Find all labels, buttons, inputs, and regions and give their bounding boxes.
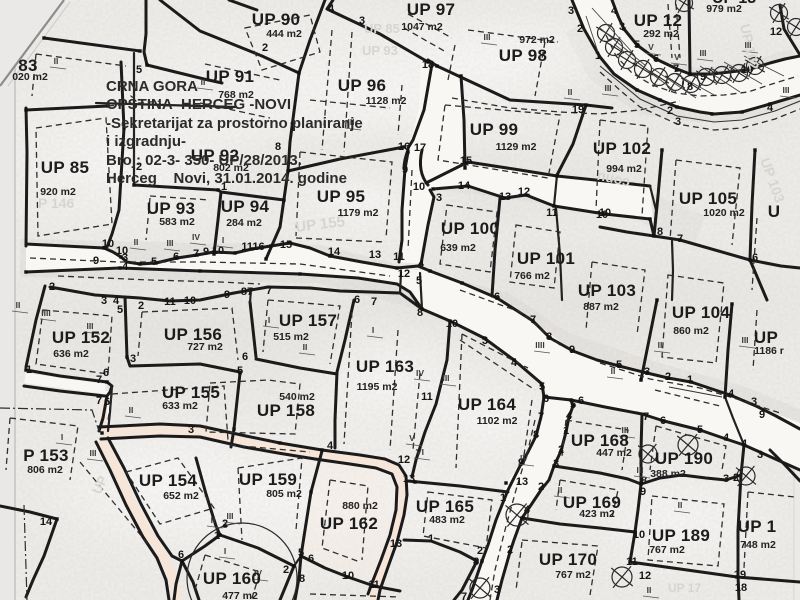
svg-text:13: 13	[369, 249, 381, 261]
svg-text:7: 7	[677, 233, 683, 245]
svg-text:11: 11	[546, 207, 558, 219]
svg-text:UP 91: UP 91	[206, 67, 254, 86]
svg-text:4: 4	[566, 410, 573, 422]
svg-text:3: 3	[130, 353, 136, 365]
svg-text:IIII: IIII	[535, 340, 544, 350]
svg-text:994 m2: 994 m2	[606, 163, 642, 175]
svg-text:10: 10	[102, 238, 114, 250]
svg-text:6: 6	[104, 396, 110, 408]
svg-text:284 m2: 284 m2	[226, 217, 262, 229]
svg-text:III: III	[442, 373, 449, 383]
svg-text:16: 16	[398, 141, 410, 153]
svg-text:9: 9	[203, 246, 209, 258]
svg-text:4: 4	[728, 388, 735, 400]
svg-text:14: 14	[458, 180, 471, 192]
svg-text:19: 19	[572, 104, 584, 116]
svg-text:4: 4	[611, 5, 618, 17]
svg-text:UP 102: UP 102	[593, 139, 651, 158]
svg-text:19: 19	[734, 569, 746, 581]
svg-text:13: 13	[499, 191, 511, 203]
svg-text:UP 95: UP 95	[317, 187, 365, 206]
svg-text:3: 3	[751, 396, 757, 408]
svg-text:5: 5	[237, 365, 243, 377]
svg-text:6: 6	[103, 367, 109, 379]
svg-text:UP 94: UP 94	[221, 197, 270, 216]
svg-text:2: 2	[283, 564, 289, 576]
svg-text:UP 90: UP 90	[252, 10, 300, 29]
svg-text:10: 10	[446, 318, 458, 330]
svg-text:388 m2: 388 m2	[650, 468, 686, 480]
svg-text:1128 m2: 1128 m2	[366, 95, 407, 107]
svg-text:3: 3	[568, 5, 574, 17]
svg-text:III: III	[699, 48, 706, 58]
svg-text:12: 12	[518, 186, 530, 198]
svg-text:5: 5	[136, 64, 142, 76]
svg-text:2: 2	[538, 481, 544, 493]
svg-text:805 m2: 805 m2	[266, 488, 302, 500]
svg-text:8: 8	[533, 429, 539, 441]
svg-text:7: 7	[643, 411, 649, 423]
svg-text:2: 2	[577, 23, 583, 35]
svg-text:9: 9	[700, 71, 706, 83]
svg-text:6: 6	[242, 351, 248, 363]
svg-text:979 m2: 979 m2	[706, 3, 742, 15]
svg-text:3: 3	[553, 458, 559, 470]
svg-text:II: II	[611, 366, 616, 376]
svg-text:11: 11	[421, 391, 433, 403]
svg-text:5: 5	[539, 381, 545, 393]
svg-text:I: I	[268, 315, 270, 325]
svg-text:i izgradnju-: i izgradnju-	[106, 133, 186, 150]
svg-text:1: 1	[214, 530, 220, 542]
svg-text:IV: IV	[520, 453, 528, 463]
svg-text:633 m2: 633 m2	[162, 400, 198, 412]
svg-text:9: 9	[93, 255, 99, 267]
svg-text:6: 6	[752, 252, 758, 264]
svg-text:UP 157: UP 157	[279, 311, 337, 330]
svg-text:9: 9	[402, 164, 408, 176]
svg-text:I: I	[61, 432, 63, 442]
svg-text:13: 13	[390, 538, 402, 550]
svg-text:636 m2: 636 m2	[53, 348, 89, 360]
svg-text:4: 4	[723, 432, 730, 444]
svg-text:8: 8	[546, 331, 552, 343]
svg-text:5: 5	[616, 359, 622, 371]
svg-text:12: 12	[770, 26, 782, 38]
svg-text:14: 14	[328, 246, 341, 258]
svg-text:3: 3	[188, 424, 194, 436]
svg-text:1020 m2: 1020 m2	[703, 207, 745, 219]
svg-text:1186 r: 1186 r	[754, 345, 784, 357]
svg-text:1: 1	[687, 374, 693, 386]
svg-text:UP 190: UP 190	[655, 449, 713, 468]
svg-text:UP 158: UP 158	[257, 401, 315, 420]
svg-text:V: V	[648, 42, 654, 52]
svg-text:4: 4	[418, 258, 425, 270]
svg-text:87: 87	[241, 286, 253, 298]
svg-text:444 m2: 444 m2	[266, 28, 302, 40]
svg-text:11: 11	[164, 296, 176, 308]
svg-text:7: 7	[538, 411, 544, 423]
svg-text:IV: IV	[192, 232, 200, 242]
svg-text:5: 5	[298, 547, 304, 559]
svg-text:3: 3	[644, 366, 650, 378]
svg-text:4: 4	[524, 504, 531, 516]
svg-text:5: 5	[117, 304, 123, 316]
svg-text:III: III	[483, 32, 490, 42]
svg-text:639 m2: 639 m2	[440, 242, 476, 254]
svg-text:767 m2: 767 m2	[555, 569, 591, 581]
svg-text:6: 6	[354, 294, 360, 306]
svg-text:V: V	[674, 52, 680, 62]
svg-text:12: 12	[639, 570, 651, 582]
svg-text:III: III	[636, 465, 643, 475]
svg-text:7: 7	[96, 374, 102, 386]
svg-text:UP 162: UP 162	[320, 514, 378, 533]
svg-text:UP 152: UP 152	[52, 328, 110, 347]
svg-text:7: 7	[461, 591, 467, 600]
svg-text:4: 4	[328, 3, 335, 15]
svg-text:6: 6	[660, 415, 666, 427]
svg-text:II: II	[16, 300, 21, 310]
svg-text:II: II	[647, 585, 652, 595]
svg-text:423 m2: 423 m2	[579, 508, 615, 520]
svg-text:P 153: P 153	[23, 446, 69, 465]
svg-text:020 m2: 020 m2	[12, 71, 48, 83]
svg-text:3: 3	[619, 21, 625, 33]
svg-text:727 m2: 727 m2	[187, 341, 223, 353]
svg-text:8: 8	[687, 81, 693, 93]
svg-text:1: 1	[595, 50, 601, 62]
svg-text:4: 4	[122, 261, 129, 273]
svg-text:15: 15	[460, 155, 472, 167]
svg-text:U: U	[768, 202, 781, 221]
svg-text:Herceg Novi, 31.01.2014. go: Herceg Novi, 31.01.2014. godine	[106, 170, 347, 187]
svg-text:UP 163: UP 163	[356, 357, 414, 376]
svg-text:806 m2: 806 m2	[27, 464, 63, 476]
svg-text:1: 1	[428, 533, 434, 545]
svg-text:II: II	[558, 485, 563, 495]
svg-text:2: 2	[558, 444, 564, 456]
svg-text:515 m2: 515 m2	[273, 331, 309, 343]
svg-text:7: 7	[266, 285, 272, 297]
svg-text:I: I	[372, 325, 374, 335]
svg-text:477 m2: 477 m2	[222, 590, 258, 600]
svg-text:UP 17: UP 17	[668, 581, 701, 595]
svg-text:IV: IV	[416, 368, 424, 378]
svg-text:1047 m2: 1047 m2	[401, 21, 443, 33]
svg-text:18: 18	[422, 59, 434, 71]
svg-text:6: 6	[578, 395, 584, 407]
svg-text:540 m2: 540 m2	[279, 391, 315, 403]
svg-text:UP 159: UP 159	[239, 470, 297, 489]
svg-text:UP 160: UP 160	[203, 569, 261, 588]
svg-text:5: 5	[416, 275, 422, 287]
svg-text:3: 3	[757, 449, 763, 461]
svg-text:UP 189: UP 189	[652, 526, 710, 545]
svg-text:8: 8	[417, 307, 423, 319]
svg-text:6: 6	[494, 291, 500, 303]
svg-text:2: 2	[49, 281, 55, 293]
svg-text:UP 101: UP 101	[517, 249, 575, 268]
svg-text:767 m2: 767 m2	[649, 544, 685, 556]
svg-text:II: II	[201, 77, 206, 87]
svg-text:5: 5	[634, 39, 640, 51]
svg-text:7: 7	[371, 296, 377, 308]
svg-text:1: 1	[563, 425, 569, 437]
svg-text:1179 m2: 1179 m2	[338, 207, 379, 219]
svg-text:UP 154: UP 154	[139, 471, 197, 490]
svg-text:7: 7	[96, 395, 102, 407]
svg-text:6: 6	[173, 251, 179, 263]
svg-text:9: 9	[640, 486, 646, 498]
svg-text:2: 2	[665, 371, 671, 383]
svg-text:UP 93: UP 93	[362, 43, 398, 58]
svg-text:3: 3	[101, 295, 107, 307]
svg-text:III: III	[89, 448, 96, 458]
svg-text:880 m2: 880 m2	[342, 500, 378, 512]
svg-text:447 m2: 447 m2	[596, 447, 632, 459]
svg-text:13: 13	[516, 476, 528, 488]
svg-text:17: 17	[414, 142, 426, 154]
svg-text:12: 12	[398, 268, 410, 280]
svg-text:II: II	[658, 340, 663, 350]
svg-text:1116: 1116	[241, 241, 264, 253]
svg-text:II: II	[678, 500, 683, 510]
svg-text:3: 3	[494, 584, 500, 596]
svg-text:UP 96: UP 96	[338, 76, 386, 95]
svg-text:1129 m2: 1129 m2	[496, 141, 537, 153]
svg-text:4: 4	[511, 357, 518, 369]
svg-text:8: 8	[657, 226, 663, 238]
svg-text:9: 9	[224, 289, 230, 301]
svg-text:UP 104: UP 104	[672, 303, 730, 322]
svg-text:UP 103: UP 103	[578, 281, 636, 300]
svg-text:10: 10	[633, 529, 645, 541]
svg-text:2: 2	[138, 300, 144, 312]
svg-text:18: 18	[735, 582, 747, 594]
svg-text:1195 m2: 1195 m2	[357, 381, 398, 393]
svg-text:3: 3	[436, 192, 442, 204]
svg-text:9: 9	[759, 409, 765, 421]
svg-text:UP 170: UP 170	[539, 550, 597, 569]
svg-text:UP 98: UP 98	[499, 46, 547, 65]
svg-text:7: 7	[530, 314, 536, 326]
svg-text:I: I	[224, 546, 226, 556]
svg-text:UP 85: UP 85	[41, 158, 89, 177]
svg-text:7: 7	[673, 63, 679, 75]
svg-text:13: 13	[403, 473, 415, 485]
svg-text:2: 2	[262, 42, 268, 54]
svg-text:766 m2: 766 m2	[514, 270, 550, 282]
svg-text:652 m2: 652 m2	[163, 490, 199, 502]
svg-text:VI: VI	[416, 447, 424, 457]
svg-text:8: 8	[299, 573, 305, 585]
svg-text:6: 6	[178, 549, 184, 561]
svg-text:4: 4	[327, 440, 334, 452]
svg-text:10: 10	[342, 570, 354, 582]
svg-text:I: I	[222, 235, 224, 245]
svg-text:972 m2: 972 m2	[519, 34, 555, 46]
svg-text:6: 6	[543, 393, 549, 405]
svg-text:292 m2: 292 m2	[643, 28, 679, 40]
svg-text:3: 3	[482, 335, 488, 347]
svg-text:II: II	[211, 515, 216, 525]
svg-text:UP 85: UP 85	[364, 21, 400, 36]
svg-text:3: 3	[723, 473, 729, 485]
svg-text:5: 5	[151, 256, 157, 268]
svg-text:UP 164: UP 164	[458, 395, 516, 414]
svg-text:OPŠTINA HERCEG -NOVI: OPŠTINA HERCEG -NOVI	[106, 95, 291, 113]
svg-text:10: 10	[596, 209, 608, 221]
svg-text:Broj: 02-3- 350- UP/28/2013.: Broj: 02-3- 350- UP/28/2013.	[106, 152, 302, 169]
svg-text:III: III	[782, 85, 789, 95]
svg-text:6: 6	[308, 553, 314, 565]
svg-text:2: 2	[667, 105, 673, 117]
svg-text:9: 9	[569, 344, 575, 356]
svg-text:UP 99: UP 99	[470, 120, 518, 139]
svg-text:III: III	[226, 511, 233, 521]
svg-text:II: II	[134, 237, 139, 247]
svg-text:748 m2: 748 m2	[740, 539, 776, 551]
svg-text:10: 10	[413, 181, 425, 193]
svg-text:II: II	[303, 342, 308, 352]
svg-text:4: 4	[767, 102, 774, 114]
svg-text:1102 m2: 1102 m2	[477, 415, 518, 427]
svg-text:UP 100: UP 100	[441, 219, 499, 238]
svg-text:CRNA GORA: CRNA GORA	[106, 78, 198, 95]
svg-text:V: V	[409, 433, 415, 443]
svg-text:III: III	[166, 238, 173, 248]
svg-text:11: 11	[393, 251, 405, 263]
svg-text:7: 7	[193, 248, 199, 260]
svg-text:12: 12	[398, 454, 410, 466]
svg-text:8: 8	[473, 556, 479, 568]
svg-text:III: III	[741, 335, 748, 345]
svg-text:5: 5	[697, 424, 703, 436]
svg-text:11: 11	[626, 556, 638, 568]
svg-text:920 m2: 920 m2	[40, 186, 76, 198]
svg-text:IIII: IIII	[41, 308, 50, 318]
svg-text:III: III	[604, 83, 611, 93]
svg-text:11: 11	[368, 579, 380, 591]
svg-text:583 m2: 583 m2	[159, 216, 195, 228]
svg-text:II: II	[568, 87, 573, 97]
svg-text:UP 1: UP 1	[738, 517, 777, 536]
svg-text:3: 3	[675, 116, 681, 128]
svg-text:887 m2: 887 m2	[583, 301, 619, 313]
svg-text:1: 1	[500, 492, 506, 504]
svg-text:-Sekretarijat za prostorno pla: -Sekretarijat za prostorno planiranje	[106, 115, 363, 132]
svg-text:860 m2: 860 m2	[673, 325, 709, 337]
svg-text:II: II	[54, 56, 59, 66]
svg-text:4: 4	[741, 438, 748, 450]
svg-text:UP 105: UP 105	[679, 189, 737, 208]
svg-text:10: 10	[184, 295, 196, 307]
svg-text:14: 14	[40, 516, 53, 528]
svg-text:483 m2: 483 m2	[429, 514, 465, 526]
svg-text:2: 2	[733, 472, 739, 484]
svg-text:15: 15	[280, 239, 292, 251]
svg-text:2: 2	[507, 544, 513, 556]
svg-text:1: 1	[26, 364, 32, 376]
svg-text:UP 97: UP 97	[407, 0, 455, 19]
svg-text:II: II	[129, 405, 134, 415]
